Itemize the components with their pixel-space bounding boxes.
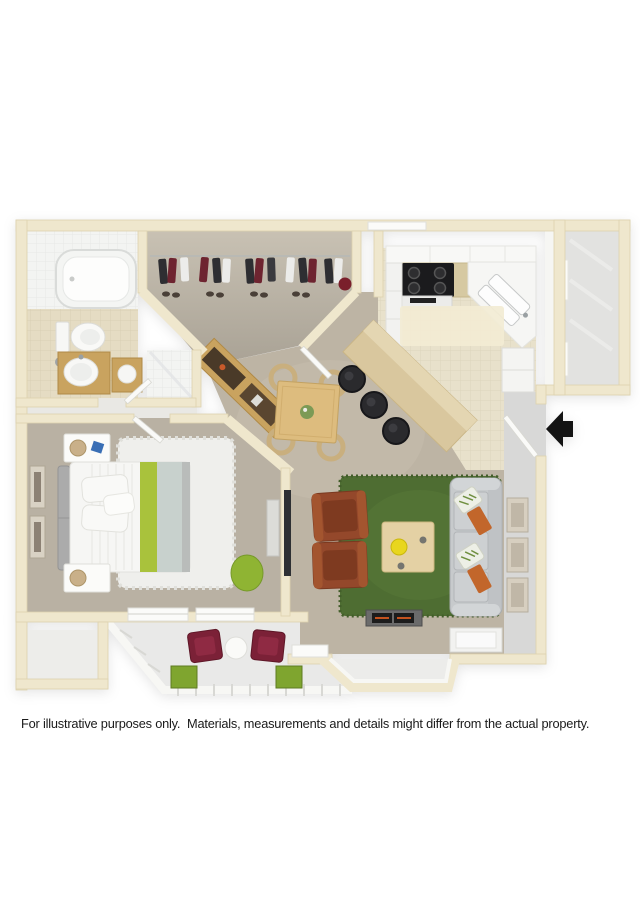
nightstand-lamp	[70, 440, 86, 456]
wall-tv	[284, 490, 291, 576]
wall-closet-east	[352, 231, 361, 293]
stove-display	[410, 298, 436, 303]
kitchen-window	[368, 222, 426, 230]
wall-bedroom-top-b	[170, 414, 228, 423]
table-decor	[420, 537, 427, 544]
window-seat-glass	[456, 632, 496, 648]
upper-cabinets	[386, 246, 536, 263]
side-cabinet-bowl	[118, 365, 136, 383]
wall-entry-right-a	[536, 385, 546, 404]
storage-bag	[339, 278, 352, 291]
alcove-floor	[27, 630, 98, 679]
entry-arrow-icon	[546, 411, 573, 447]
wall-art-inner	[34, 522, 41, 552]
patio-window	[292, 645, 328, 657]
patio-chair	[251, 629, 286, 662]
bed-foot-rail	[182, 462, 190, 572]
entry-wall-art	[507, 498, 528, 612]
disclaimer-text: For illustrative purposes only. Material…	[21, 716, 621, 731]
floor-plan-svg	[0, 0, 640, 905]
wall-bath-south-b	[126, 398, 196, 407]
hanging-clothes	[158, 257, 343, 284]
floor-plan-image: For illustrative purposes only. Material…	[0, 0, 640, 905]
entry-door-threshold	[536, 404, 546, 456]
nightstand-lamp	[70, 570, 86, 586]
wall-bath-south-a	[16, 398, 98, 407]
table-decor	[398, 563, 405, 570]
kitchen-mat	[400, 306, 504, 346]
wall-living-bottom	[450, 654, 546, 664]
dresser	[267, 500, 279, 556]
wall-bath-closet	[138, 231, 147, 293]
bathtub-drain	[70, 277, 75, 282]
wall-outer-right-upper	[619, 220, 630, 395]
sofa	[450, 478, 502, 616]
yellow-bowl	[391, 539, 407, 555]
coffee-table	[382, 522, 434, 572]
toilet-seat	[80, 329, 100, 345]
wall-kitchen-west	[374, 231, 383, 297]
bed-sage-runner	[157, 462, 182, 572]
wall-entry-right-b	[536, 456, 546, 664]
planter-box	[276, 666, 302, 688]
sink-faucet	[79, 355, 84, 360]
pantry-floor	[545, 231, 554, 385]
armchair	[312, 541, 368, 589]
planter-box	[171, 666, 197, 688]
beanbag	[231, 555, 263, 591]
patio-table	[225, 637, 247, 659]
bed-green-runner	[140, 462, 157, 572]
armchair	[311, 490, 368, 542]
wall-bedroom-top-a	[16, 414, 134, 423]
toilet-tank	[56, 322, 69, 352]
wall-storage-west	[554, 220, 565, 395]
dining-table	[274, 381, 340, 443]
wall-outer-top	[16, 220, 630, 231]
wall-art-inner	[34, 472, 41, 502]
patio-chair	[187, 629, 223, 663]
sink-bowl	[70, 363, 92, 381]
wall-alcove-bottom	[16, 679, 108, 689]
